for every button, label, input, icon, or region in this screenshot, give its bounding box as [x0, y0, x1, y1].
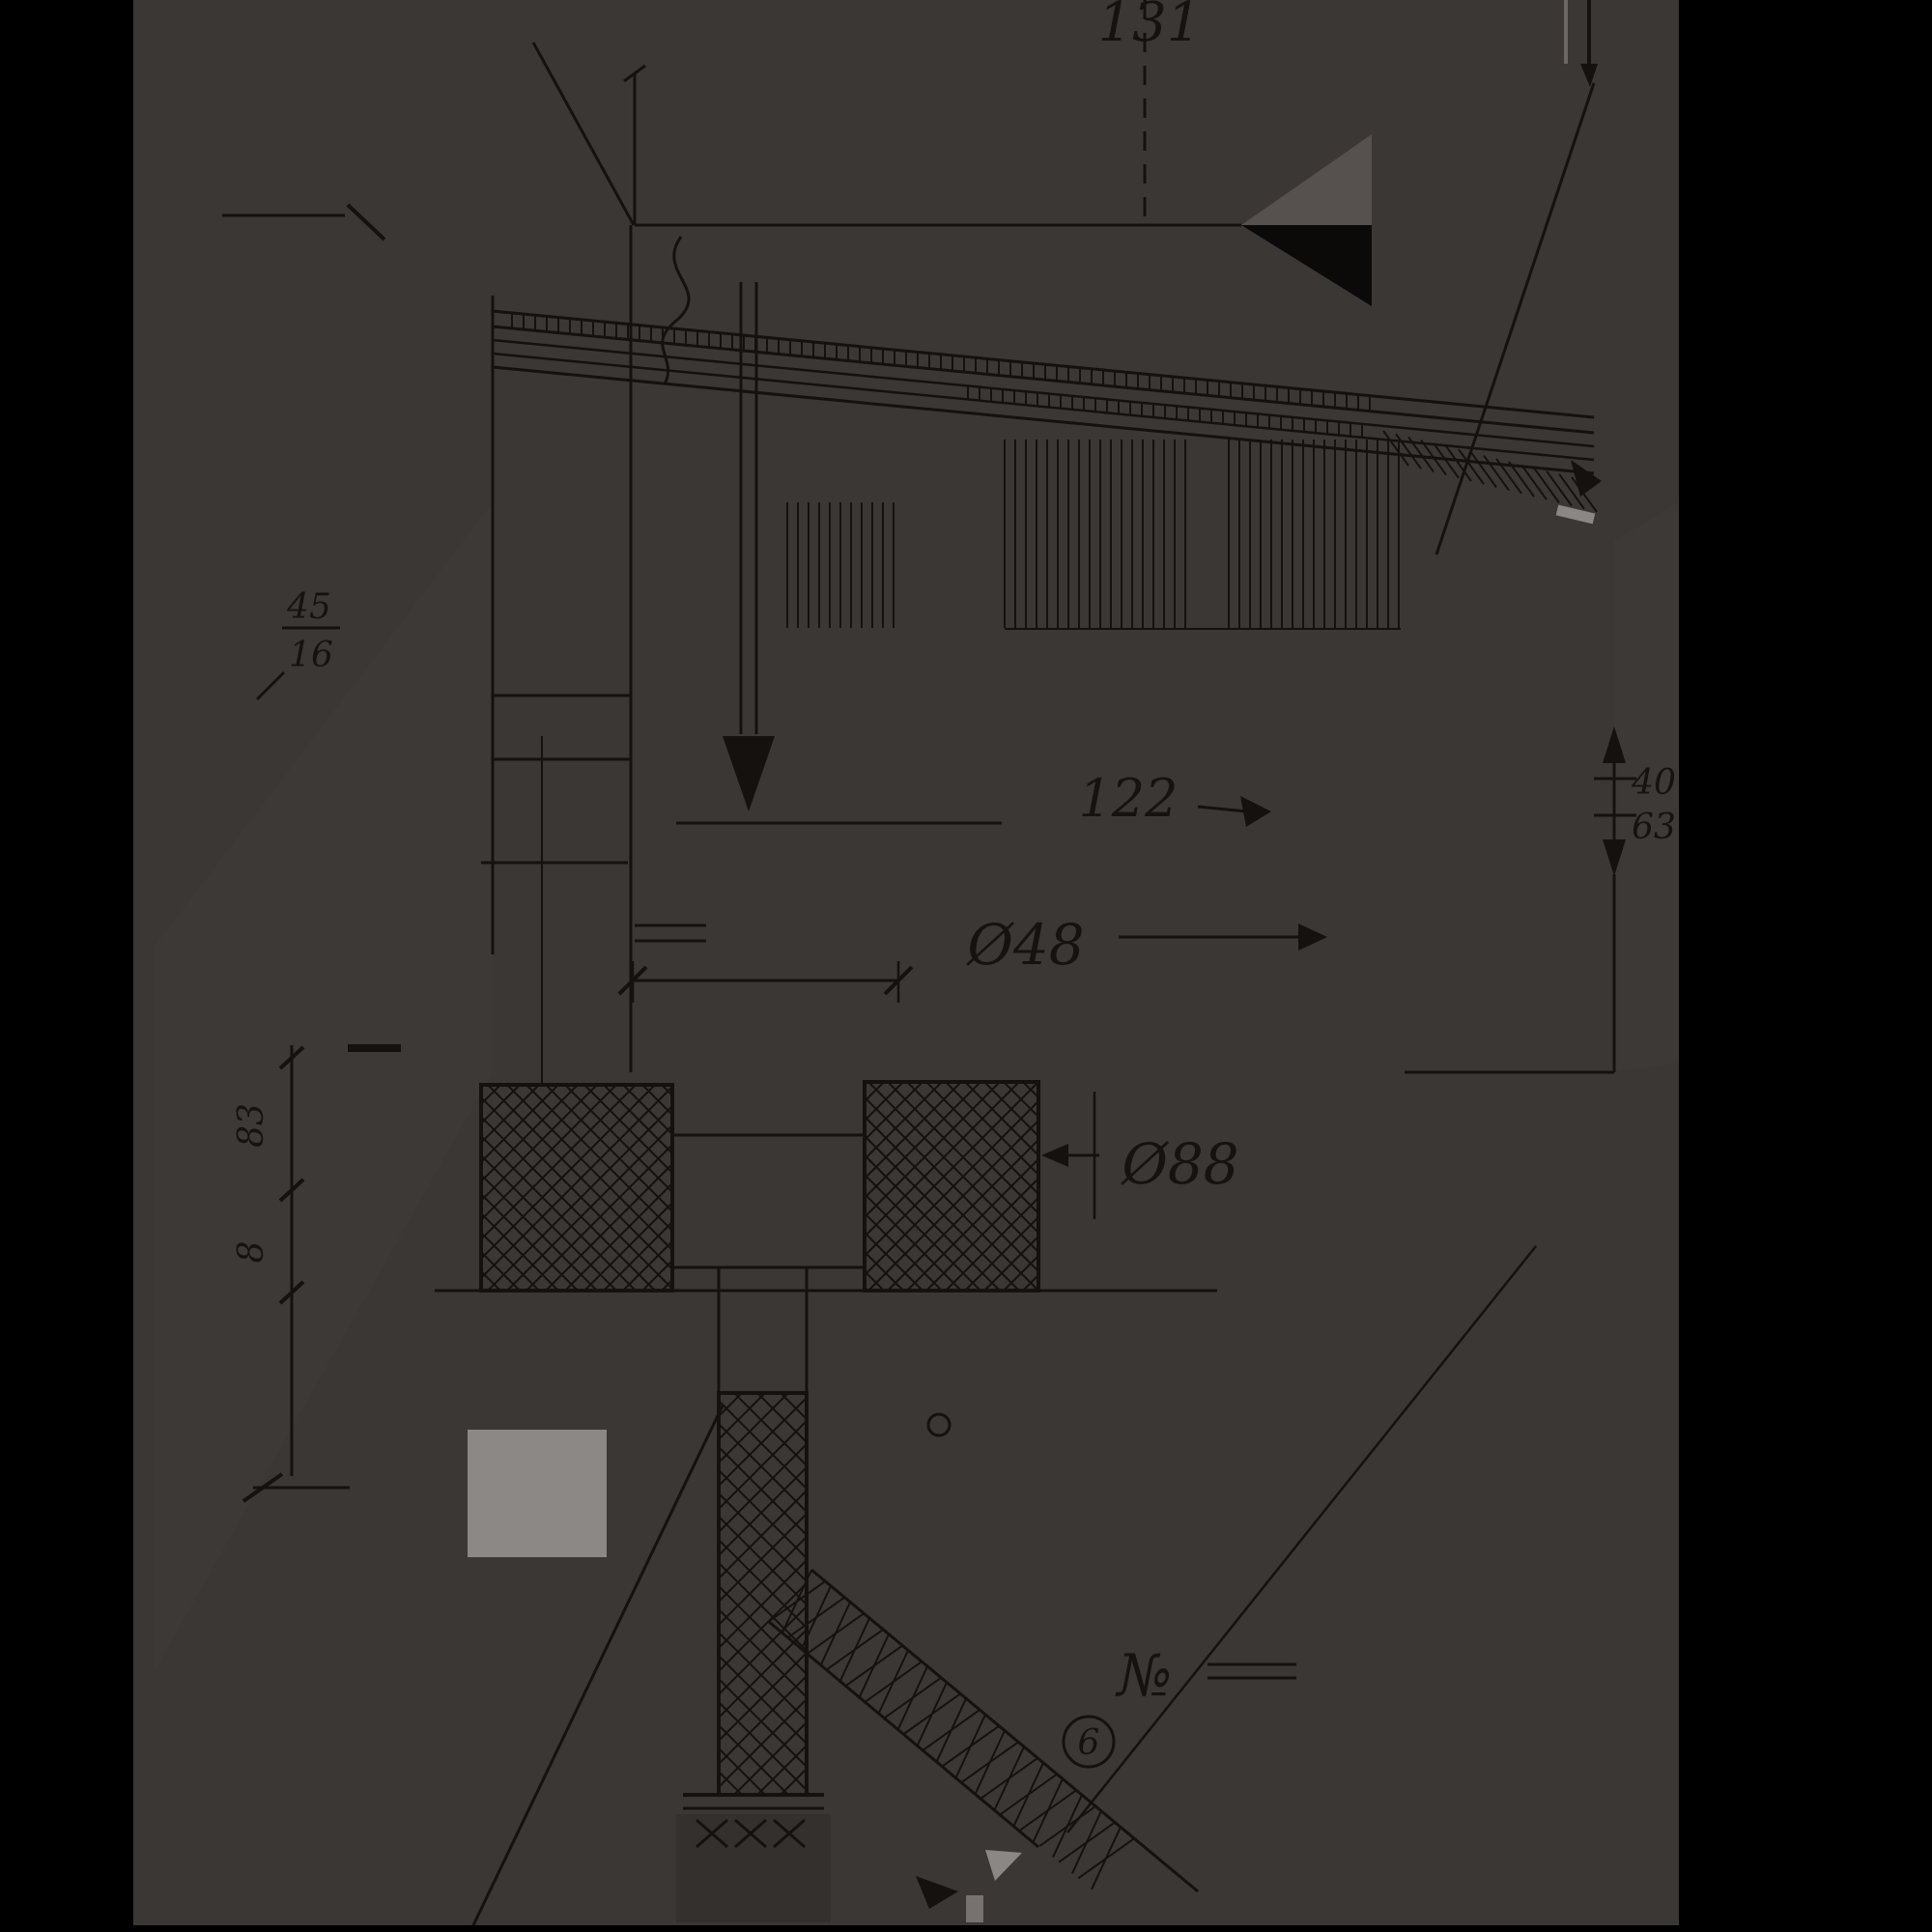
left-frac-top-label: 45 [286, 587, 331, 627]
right-upper-label: 40 [1631, 763, 1676, 803]
left-frac-bottom-label: 16 [289, 636, 333, 675]
dim-mid-label: 122 [1078, 768, 1178, 829]
right-lower-label: 63 [1632, 808, 1676, 847]
technical-drawing: 131 122 Ø48 40 63 Ø88 [0, 0, 1932, 1932]
number-sign-label: № [1115, 1642, 1173, 1710]
left-upper-label: 83 [232, 1103, 271, 1148]
dia-large-label: Ø88 [1120, 1131, 1238, 1197]
detail-circle-label: 6 [1078, 1723, 1100, 1763]
dia-small-label: Ø48 [965, 912, 1084, 978]
dim-top-label: 131 [1098, 0, 1202, 54]
left-lower-label: 8 [232, 1241, 271, 1264]
strut-gray-bar [966, 1895, 983, 1922]
gray-panel [468, 1430, 607, 1557]
